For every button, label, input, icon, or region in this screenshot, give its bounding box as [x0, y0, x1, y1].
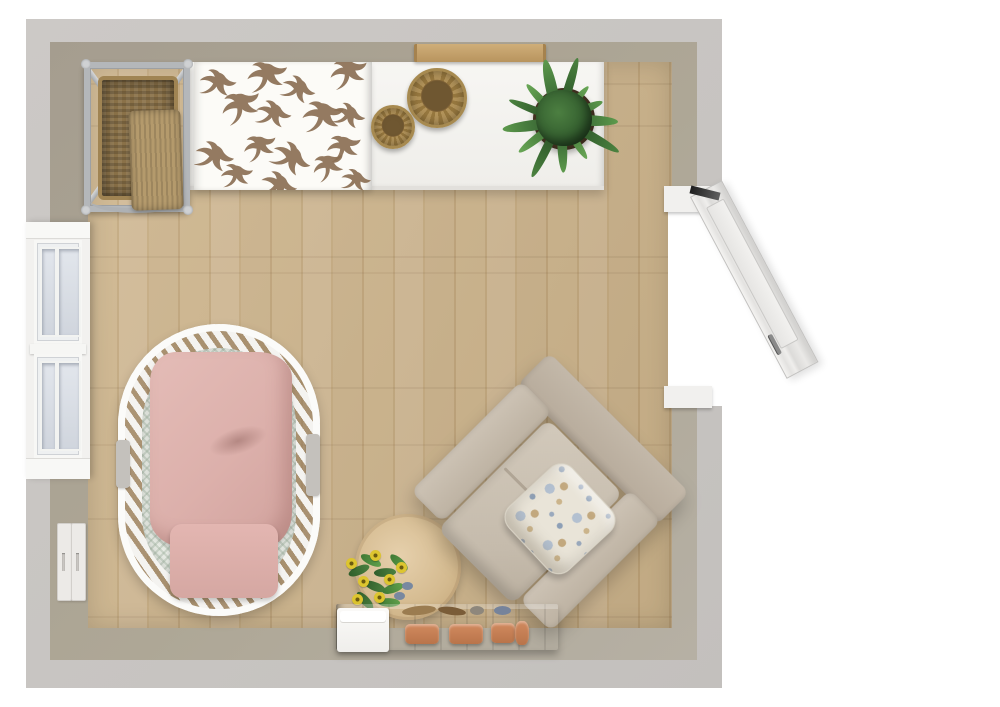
driftwood-item: [402, 604, 437, 617]
window-pane: [57, 361, 81, 451]
oval-crib[interactable]: [118, 324, 320, 616]
light-switch[interactable]: [71, 523, 86, 601]
window-sash-top: [34, 240, 82, 344]
door-jamb-bottom: [664, 386, 712, 408]
terracotta-pot: [491, 623, 515, 643]
wicker-hamper-stand[interactable]: [84, 62, 190, 212]
crib-pink-pillow: [170, 524, 278, 598]
driftwood-item: [438, 605, 467, 617]
window-sill-top: [26, 222, 90, 239]
woven-basket-small[interactable]: [371, 105, 415, 149]
window-mid-rail: [30, 344, 86, 354]
blanket-crease: [205, 419, 270, 462]
swallow-pattern: [194, 62, 372, 190]
terracotta-knob: [515, 621, 529, 645]
stone-item: [470, 606, 484, 615]
window-pane: [40, 361, 57, 451]
terracotta-pot: [449, 624, 483, 644]
double-hung-window[interactable]: [26, 222, 90, 478]
window-sill-bottom: [26, 458, 90, 479]
terracotta-pot: [405, 624, 439, 644]
woven-basket-large[interactable]: [407, 68, 467, 128]
window-pane: [57, 247, 81, 337]
white-storage-box: [337, 608, 389, 652]
floorplan-canvas: [0, 0, 1000, 707]
blue-item: [494, 606, 511, 615]
crib-rail-pad: [306, 434, 320, 496]
knit-blanket: [128, 109, 183, 211]
window-pane: [40, 247, 57, 337]
wooden-storage-bench[interactable]: [336, 604, 558, 650]
crib-pink-blanket: [150, 352, 292, 548]
plant-foliage: [536, 90, 592, 146]
window-sash-bottom: [34, 354, 82, 458]
crib-rail-pad: [116, 440, 130, 488]
potted-plant[interactable]: [502, 58, 626, 182]
swallow-pattern-changing-mat[interactable]: [194, 62, 372, 190]
light-switch[interactable]: [57, 523, 72, 601]
wicker-basket: [98, 76, 178, 200]
